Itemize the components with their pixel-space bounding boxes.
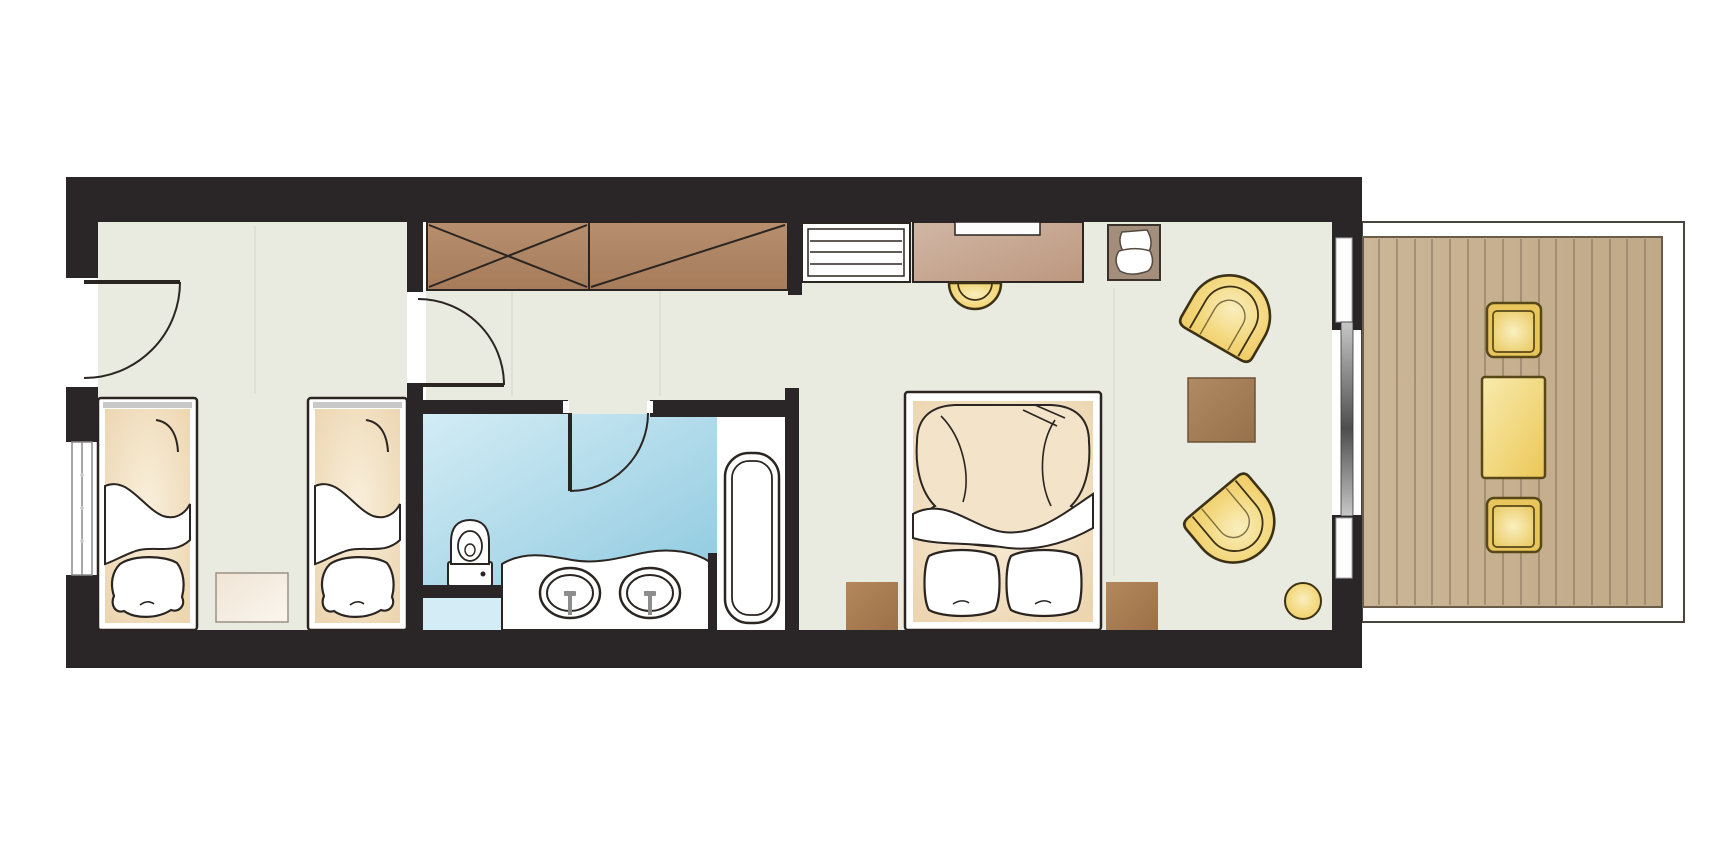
single-bed-2 <box>308 398 407 630</box>
pillow <box>322 557 394 617</box>
chair-seat <box>1116 249 1152 274</box>
wall-bottom <box>66 630 1362 668</box>
floor-plan-canvas <box>0 0 1726 844</box>
single-bed-1 <box>98 398 197 630</box>
wall-left-bottom <box>66 575 98 668</box>
wall-wardrobe-stub <box>788 222 802 295</box>
pillow-right <box>1007 550 1082 616</box>
wall-partition-top <box>407 222 423 292</box>
wall-left-top <box>66 177 98 278</box>
bedside-table-right <box>1106 582 1158 630</box>
floor-plan <box>0 0 1726 844</box>
wall-left-middle <box>66 387 98 442</box>
luggage-bench <box>802 223 910 282</box>
desk-tv-shelf <box>955 222 1040 235</box>
wall-top <box>66 177 1362 222</box>
wall-bathroom-right <box>785 388 799 630</box>
pillow-left <box>925 550 1000 616</box>
built-in-wardrobe <box>427 222 788 290</box>
room-balcony <box>1362 222 1684 622</box>
sliding-panel <box>1341 322 1353 516</box>
washbasin-right <box>620 568 680 618</box>
outdoor-table <box>1482 377 1545 478</box>
writing-desk <box>913 222 1083 282</box>
lounge-chair-niche <box>1108 225 1160 280</box>
wall-vanity-gap <box>708 553 717 630</box>
children-room-window <box>72 442 92 575</box>
side-stool <box>1285 583 1321 619</box>
bathroom-floor-strip <box>423 598 502 630</box>
pillow <box>112 557 184 617</box>
wall-bathroom-top-right <box>650 400 785 417</box>
washbasin-left <box>540 568 600 618</box>
outdoor-chair-top <box>1487 303 1541 357</box>
outdoor-chair-bottom <box>1487 498 1541 552</box>
double-bed <box>905 392 1101 630</box>
wall-bathroom-top-left <box>423 400 568 414</box>
bedside-table-left <box>846 582 898 630</box>
toilet <box>448 520 492 586</box>
wall-toilet-divider <box>407 585 502 598</box>
balcony-sliding-door <box>1336 238 1353 578</box>
coffee-table <box>1188 378 1255 442</box>
bathtub <box>717 417 785 630</box>
kids-bedside-table <box>216 573 288 622</box>
